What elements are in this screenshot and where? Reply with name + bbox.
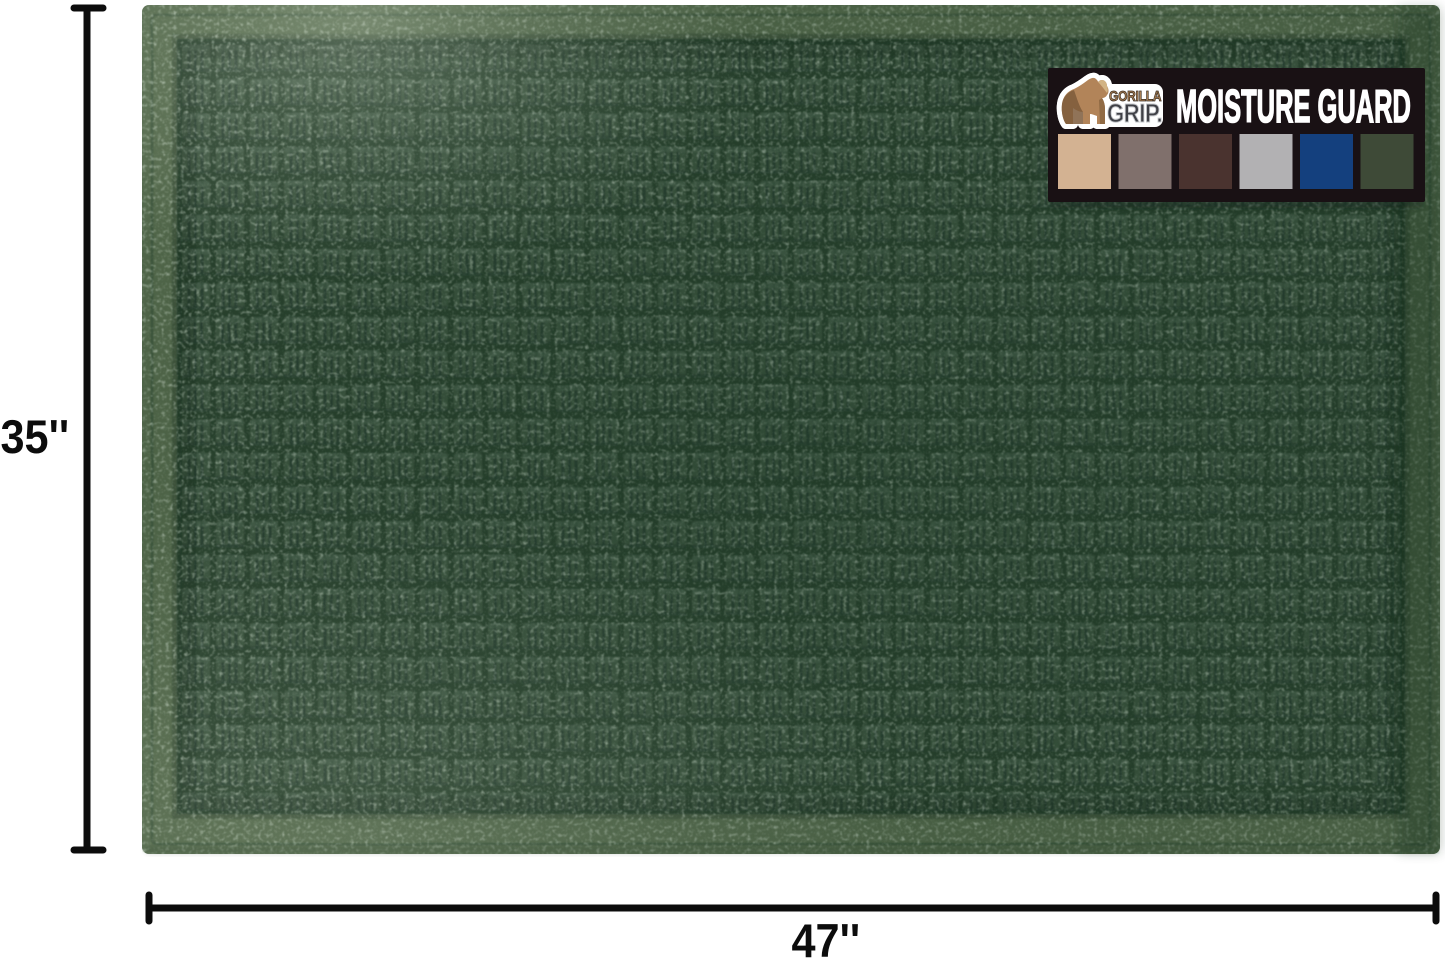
svg-text:GRIP.: GRIP. (1107, 99, 1162, 128)
svg-text:35'': 35'' (1, 410, 70, 463)
svg-text:47'': 47'' (792, 914, 861, 960)
svg-text:MOISTURE GUARD: MOISTURE GUARD (1176, 80, 1411, 132)
